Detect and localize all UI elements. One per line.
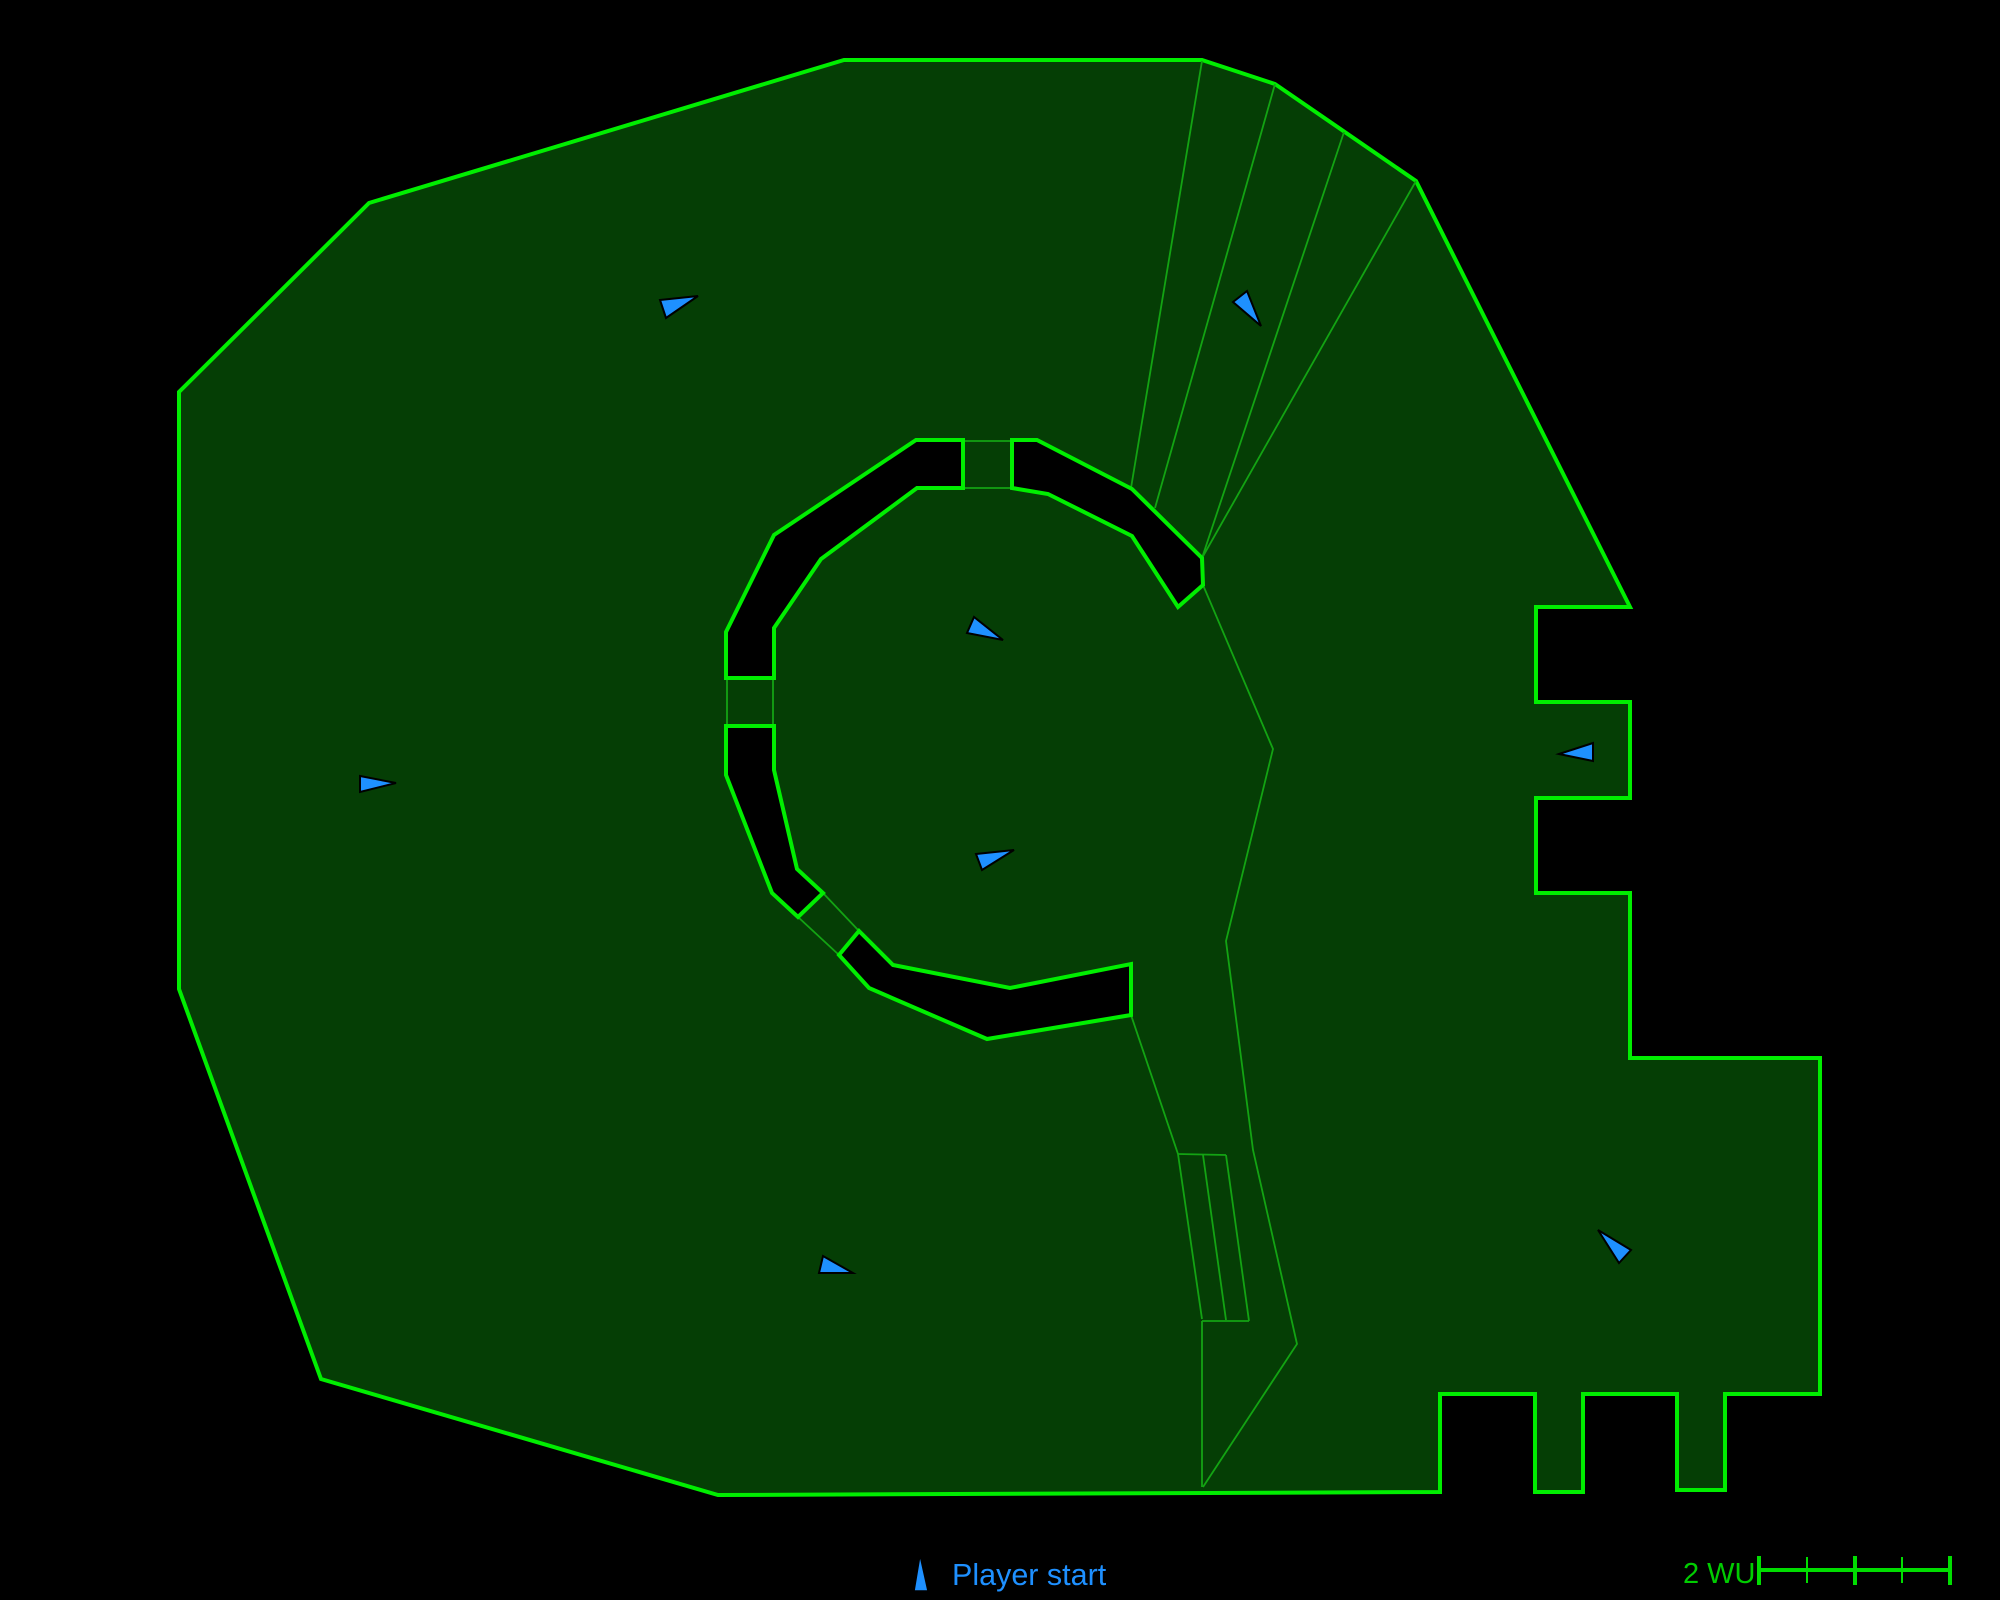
svg-text:2 WU: 2 WU [1683, 1558, 1756, 1590]
svg-text:Player start: Player start [952, 1558, 1107, 1592]
